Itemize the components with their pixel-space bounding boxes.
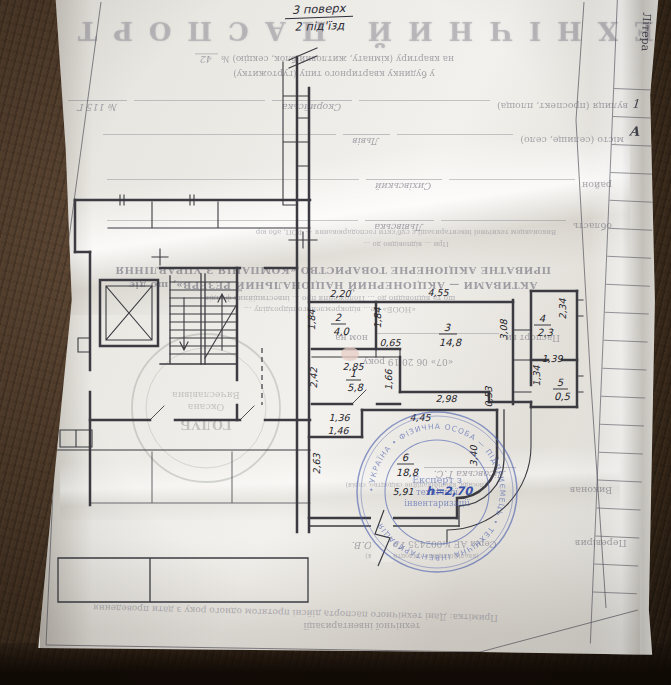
floor-plan: 2,20 1,84 1,84 4,55 2,34 3,08 0,65 2,85 … xyxy=(0,0,671,685)
table-cell xyxy=(595,509,640,539)
dim-label: 2,42 xyxy=(308,366,319,388)
dim-label: 1,34 xyxy=(531,364,542,386)
dim-label: 1,84 xyxy=(306,308,317,330)
dim-label: 1,36 xyxy=(328,412,350,423)
table-cell xyxy=(605,285,650,315)
dim-label: 2,20 xyxy=(329,288,351,299)
dim-label: 1,39 xyxy=(541,353,563,364)
litera-header: Літера xyxy=(639,12,654,51)
room-area: 5,8 xyxy=(347,382,365,393)
dim-label: 1,66 xyxy=(383,368,394,390)
table-cell xyxy=(600,397,645,427)
dim-label: 1,84 xyxy=(372,306,383,328)
table-cell xyxy=(593,565,638,595)
pink-sticker xyxy=(341,347,359,361)
height-note: h=2,70 xyxy=(426,484,472,498)
room-area: 0,5 xyxy=(554,391,571,402)
handwritten-floor-note: 3 поверх 2 під'їзд xyxy=(280,1,357,35)
table-cell: А xyxy=(612,117,657,147)
room-area: 4,0 xyxy=(333,326,351,337)
dim-label: 0,53 xyxy=(483,385,494,407)
table-cell xyxy=(597,481,642,511)
dim-label: 2,98 xyxy=(435,393,457,404)
table-cell xyxy=(602,341,647,371)
entrance-note: 2 під'їзд xyxy=(294,17,345,34)
photo-of-technical-passport: ТЕХНІЧНИЙ ПАСПОРТ на квартиру (кімнату, … xyxy=(0,0,671,685)
room-number: 4 xyxy=(539,313,546,324)
table-cell xyxy=(598,453,643,483)
room-number: 3 xyxy=(444,322,451,333)
table-cell xyxy=(601,369,646,399)
table-cell xyxy=(604,313,649,343)
table-cell xyxy=(607,229,652,259)
room-area: 2,3 xyxy=(537,327,554,338)
table-cell xyxy=(609,173,654,203)
stamp-center-line: інвентаризації xyxy=(404,498,470,508)
dim-label: 0,65 xyxy=(379,337,401,348)
table-cell xyxy=(594,537,639,567)
table-cell xyxy=(606,257,651,287)
room-area: 14,8 xyxy=(439,337,463,348)
passport-sheet: ТЕХНІЧНИЙ ПАСПОРТ на квартиру (кімнату, … xyxy=(0,0,671,685)
dim-label: 4,55 xyxy=(427,287,449,298)
table-cell xyxy=(611,145,656,175)
dim-label: 2,34 xyxy=(557,297,568,319)
room-number: 2 xyxy=(335,312,342,323)
table-cell xyxy=(608,201,653,231)
dim-label: 1,46 xyxy=(327,425,349,436)
dim-label: 3,08 xyxy=(498,318,509,340)
table-cell xyxy=(599,425,644,455)
room-number: 1 xyxy=(350,368,356,379)
room-number: 5 xyxy=(557,377,564,388)
dim-label: 2,63 xyxy=(311,452,322,474)
